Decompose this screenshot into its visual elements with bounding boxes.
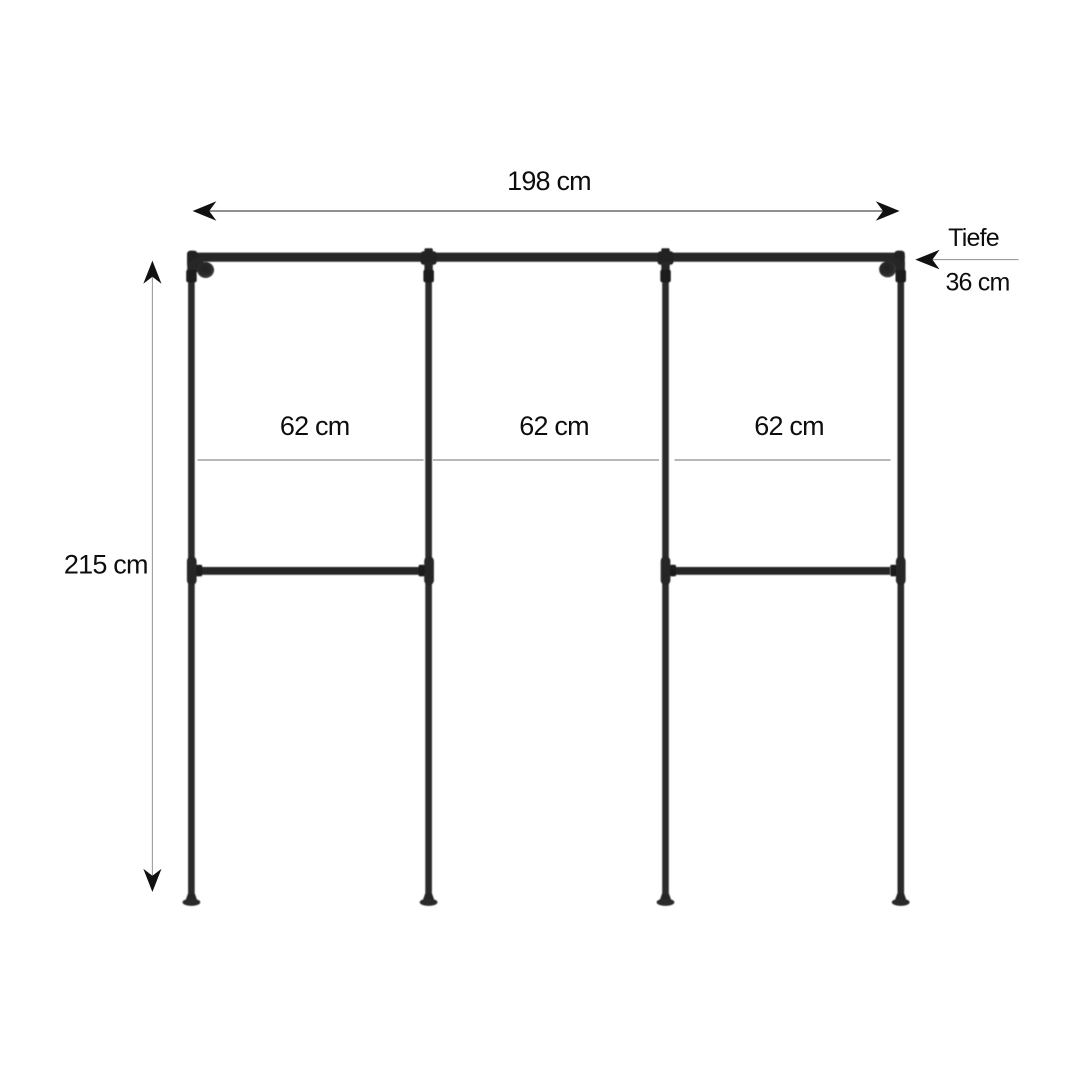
svg-text:215 cm: 215 cm — [64, 550, 148, 580]
svg-text:62 cm: 62 cm — [280, 411, 350, 441]
svg-text:198 cm: 198 cm — [507, 166, 591, 196]
svg-text:Tiefe: Tiefe — [948, 224, 999, 252]
svg-text:62 cm: 62 cm — [754, 411, 824, 441]
svg-text:36 cm: 36 cm — [945, 269, 1009, 297]
svg-text:62 cm: 62 cm — [519, 411, 589, 441]
